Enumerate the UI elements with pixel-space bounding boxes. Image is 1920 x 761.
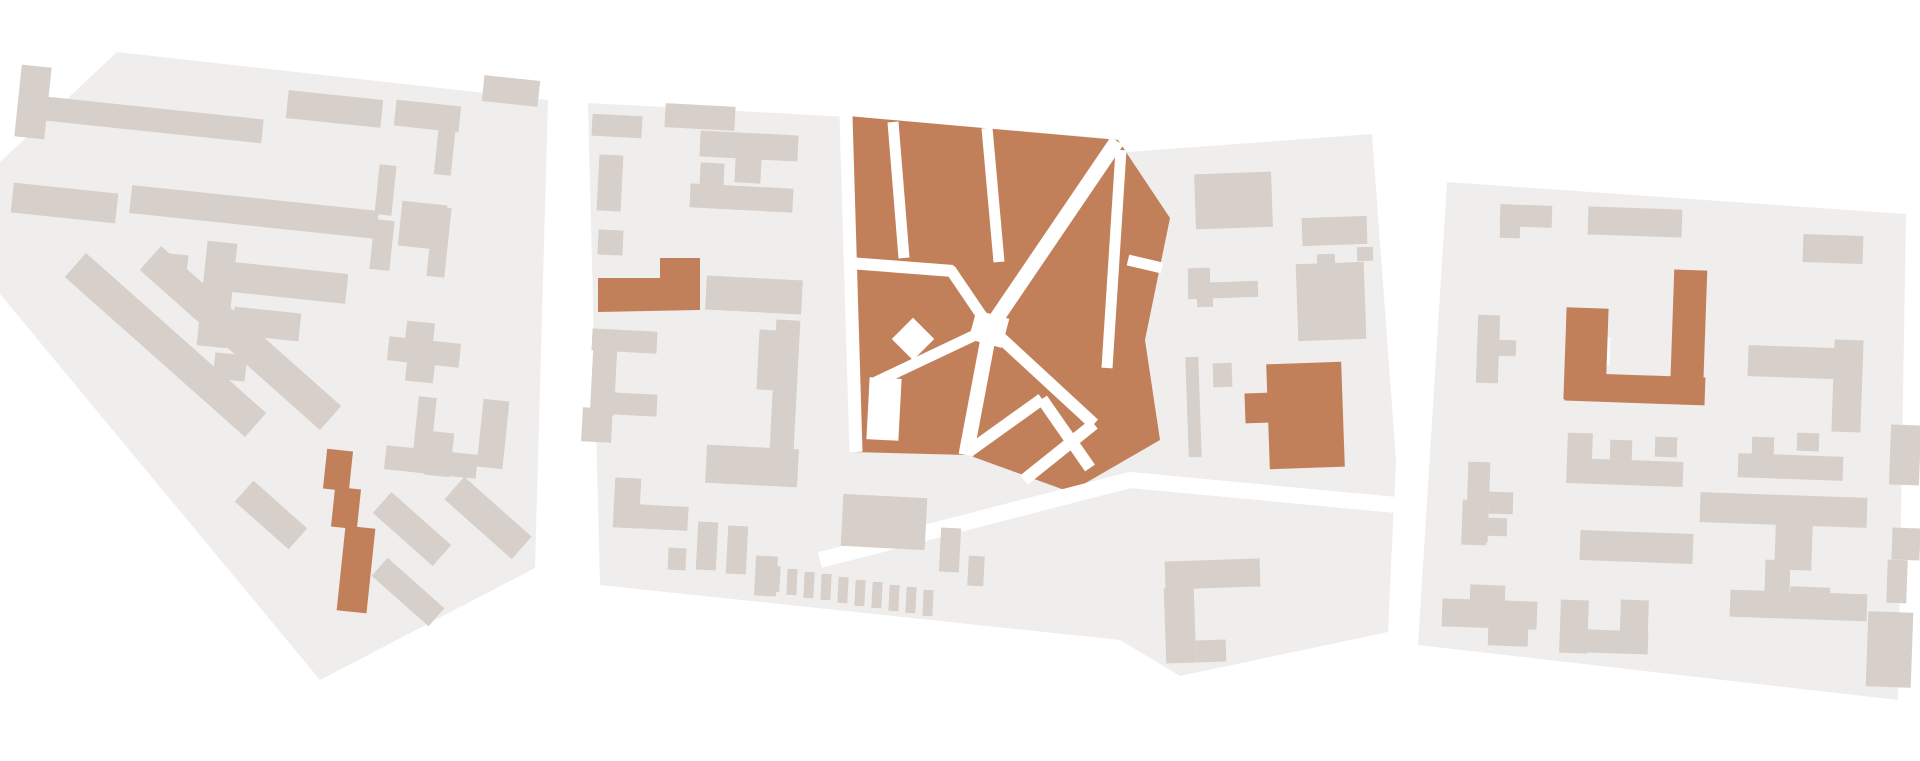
building <box>734 156 761 183</box>
street <box>1128 260 1162 268</box>
building <box>1886 560 1907 604</box>
building <box>1567 458 1684 487</box>
building <box>405 361 435 384</box>
building <box>871 582 882 608</box>
building <box>591 328 657 353</box>
building <box>1489 492 1514 515</box>
building <box>1488 627 1529 646</box>
building <box>613 503 688 531</box>
building <box>1165 558 1261 589</box>
building <box>705 445 799 488</box>
district-center <box>581 103 1396 676</box>
building <box>1803 234 1864 264</box>
building <box>1738 453 1844 481</box>
building <box>1357 247 1373 262</box>
building <box>1461 500 1488 546</box>
building <box>1164 587 1197 663</box>
building <box>939 528 961 573</box>
building <box>1188 281 1259 299</box>
building <box>405 321 435 344</box>
building <box>1317 254 1335 267</box>
building <box>1891 528 1920 561</box>
building <box>1700 492 1868 528</box>
accent-building <box>1266 362 1345 470</box>
accent-building <box>323 449 353 491</box>
building <box>699 130 798 161</box>
building <box>1296 262 1367 341</box>
district-west <box>0 52 548 680</box>
figure-ground-city-map <box>0 0 1920 761</box>
building <box>1496 340 1517 357</box>
building <box>699 162 724 187</box>
building <box>1730 590 1868 622</box>
building <box>1831 340 1863 433</box>
building <box>837 577 848 603</box>
building <box>1302 216 1368 246</box>
building <box>841 494 928 550</box>
building <box>854 580 865 606</box>
building <box>967 556 985 587</box>
building <box>1485 518 1508 537</box>
building <box>664 103 735 131</box>
building <box>1194 172 1273 230</box>
building <box>905 587 916 613</box>
building <box>1213 363 1233 388</box>
building <box>1500 222 1521 239</box>
building <box>667 548 686 571</box>
building <box>1889 424 1920 485</box>
building <box>786 569 797 595</box>
building <box>1610 440 1633 461</box>
building <box>424 431 454 477</box>
accent-building <box>331 487 361 529</box>
building <box>769 566 780 592</box>
district-east <box>1418 182 1920 700</box>
building <box>696 522 718 571</box>
building <box>1764 560 1790 593</box>
building <box>726 526 748 575</box>
building <box>1580 530 1694 564</box>
building <box>1752 437 1775 456</box>
building <box>1188 268 1211 285</box>
building <box>591 114 642 139</box>
accent-building <box>1670 269 1708 400</box>
map-canvas <box>0 0 1920 761</box>
building <box>1197 298 1213 308</box>
building <box>705 276 803 315</box>
building <box>1470 584 1506 605</box>
building <box>597 229 623 255</box>
building <box>1196 639 1227 662</box>
building <box>597 154 624 211</box>
building <box>1619 600 1649 654</box>
building <box>1655 437 1678 458</box>
courtyard <box>866 377 901 441</box>
building <box>922 590 933 616</box>
building <box>1866 611 1914 688</box>
building <box>888 585 899 611</box>
building <box>1797 433 1820 452</box>
street <box>849 263 953 271</box>
building <box>581 407 613 443</box>
building <box>803 572 814 598</box>
building <box>820 574 831 600</box>
accent-building <box>1244 393 1270 424</box>
building <box>1588 206 1683 237</box>
